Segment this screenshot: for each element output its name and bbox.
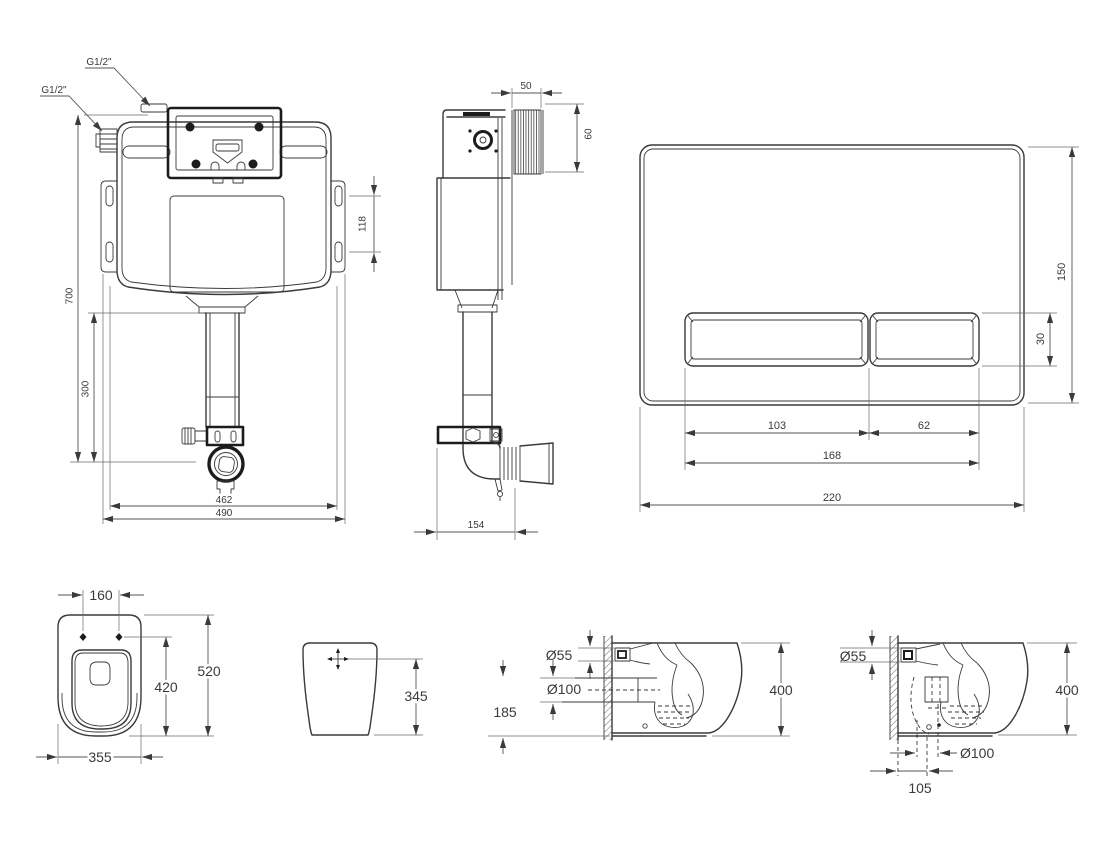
dim-small-button-62: 62 [869,420,979,433]
dim-text-inlet-dia: Ø55 [546,647,573,663]
dim-text-height: 700 [65,287,76,304]
access-box [168,108,281,183]
filling-valve-tap [182,428,207,444]
access-shaft-ribbed [514,110,543,174]
mounting-bracket-right [331,181,345,272]
pan-front-view: 345 [303,643,428,735]
dim-text-outlet-height: 185 [493,704,517,720]
dim-text-button-height: 30 [1035,333,1047,345]
dim-text-shaft-height: 60 [584,128,595,140]
dim-outlet-offset-105: 105 [870,737,953,796]
dim-slot-spacing-118: 118 [349,176,381,272]
inlet-spigot [615,648,630,661]
inlet-spigot [901,648,916,662]
flush-inlet-spot [90,662,110,685]
cistern-tank [117,104,331,295]
drain-elbow-face [209,447,243,481]
dim-depth-154: 154 [414,448,538,540]
dim-inlet-height-345: 345 [348,659,428,735]
dim-text-inner-width: 462 [216,495,233,506]
leader-inlet-top: G1/2" [85,57,150,106]
seat-hole-marker-left [80,633,87,641]
dim-text-slot-spacing: 118 [358,216,369,232]
dim-pan-height-400: 400 [998,643,1079,735]
dim-length-520: 520 [129,615,221,736]
water-inlet-fitting-left [96,129,117,152]
dim-seat-holes-160: 160 [58,587,144,631]
handle-slot-left [123,146,170,158]
dim-drop-300: 300 [81,313,205,462]
outlet-elbow-side [463,442,553,501]
dim-buttons-span-168: 168 [685,450,979,463]
dim-text-inlet-dia: Ø55 [840,648,867,664]
dim-text-holes-front: 420 [154,679,178,695]
mounting-bracket-left [101,181,117,272]
dim-text-overall-width: 490 [216,508,233,519]
cistern-front-view: G1/2" G1/2" 700 300 118 [40,57,381,524]
label-inlet-left: G1/2" [41,85,67,96]
pan-side-floor-outlet-view: Ø55 400 Ø100 105 [840,630,1079,796]
dim-outlet-height-185: 185 [488,660,610,754]
handle-slot-right [280,146,327,158]
pan-side-wall-outlet-view: Ø55 Ø100 185 400 [488,630,793,754]
dim-text-buttons-span: 168 [823,450,841,462]
dim-text-shaft-depth: 50 [520,81,532,92]
pan-internals [562,643,703,728]
cistern-side-view: 50 60 154 [414,81,595,540]
dim-text-seat-holes: 160 [89,587,113,603]
flush-pipe-side [438,290,553,501]
dim-text-inlet-height: 345 [404,688,428,704]
dim-shaft-height-60: 60 [545,104,595,172]
dim-text-plate-width: 220 [823,492,841,504]
flush-plate-view: 150 30 103 62 168 220 [640,145,1079,512]
seat-opening-inner [75,653,128,726]
dim-text-outlet-dia: Ø100 [960,745,994,761]
flush-button-small[interactable] [870,313,979,366]
pan-top-view: 160 520 420 355 [36,587,221,765]
dim-outlet-dia-100: Ø100 [890,745,994,761]
flush-pipe-front [182,296,258,499]
technical-drawing: G1/2" G1/2" 700 300 118 [0,0,1115,848]
pan-front-outline [303,643,377,735]
dim-text-plate-height: 150 [1056,263,1068,281]
dim-text-depth: 154 [468,520,485,531]
dim-holes-to-front-420: 420 [124,637,178,736]
flush-valve-port [468,129,497,152]
pan-side-outline [612,643,742,736]
dim-plate-height-150: 150 [1028,147,1079,403]
dim-text-large-button: 103 [768,420,786,432]
seat-hole-marker-right [116,633,123,641]
inlet-position-marker [327,648,349,670]
cistern-side-body [437,110,543,300]
dim-text-pan-height: 400 [769,682,793,698]
wall-section [604,636,612,740]
dim-outlet-dia-100: Ø100 [540,660,581,720]
flush-plate-inner-edge [644,149,1020,401]
flush-button-large[interactable] [685,313,868,366]
dim-text-pan-height: 400 [1055,682,1079,698]
dim-width-462: 462 [110,286,337,510]
dim-width-490: 490 [103,274,345,524]
label-inlet-top: G1/2" [86,57,112,68]
dim-text-drop: 300 [81,380,92,397]
drawing-sheet: G1/2" G1/2" 700 300 118 [0,0,1115,848]
pan-internals [911,643,989,757]
pan-side-outline [898,643,1028,736]
pan-outline [58,615,141,736]
wall-section [890,636,898,740]
dim-button-height-30: 30 [982,313,1057,366]
dim-text-small-button: 62 [918,420,930,432]
leader-inlet-left: G1/2" [40,85,102,131]
dim-text-outlet-dia: Ø100 [547,681,581,697]
dim-text-outlet-offset: 105 [908,780,932,796]
dim-text-length: 520 [197,663,221,679]
dim-text-width: 355 [88,749,112,765]
dim-width-355: 355 [36,724,163,765]
